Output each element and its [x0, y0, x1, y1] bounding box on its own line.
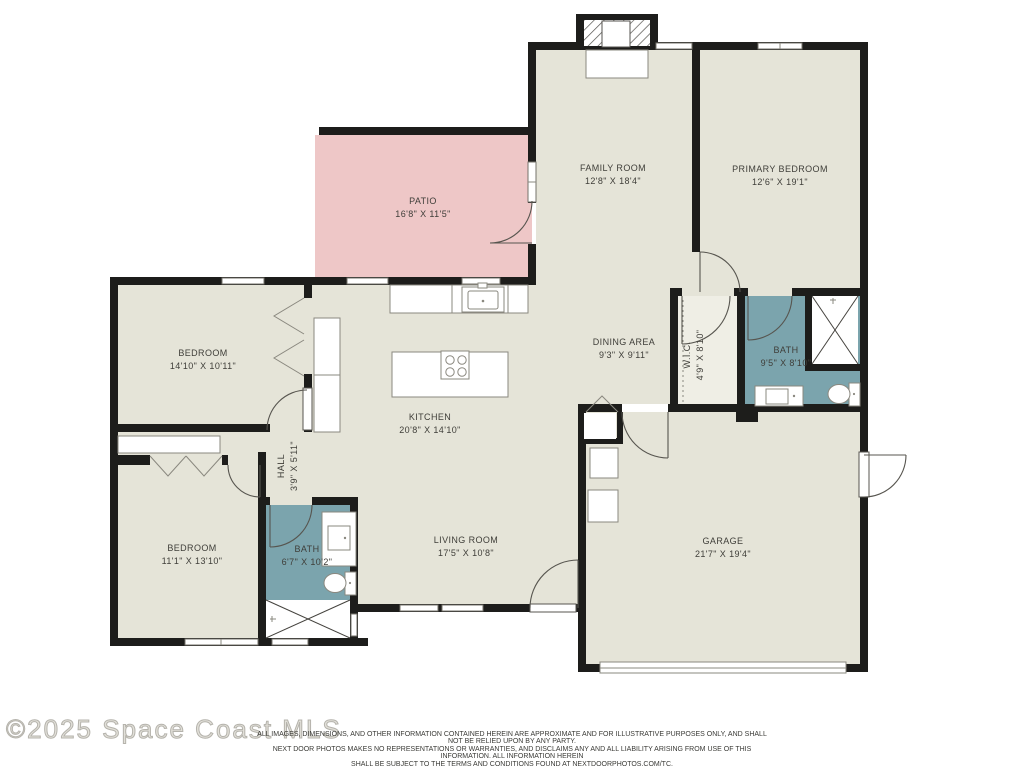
room-dims-hall: 3'9" X 5'11" [289, 441, 299, 491]
room-dims-patio: 16'8" X 11'5" [395, 209, 450, 219]
room-label-primary-bedroom: PRIMARY BEDROOM [732, 164, 828, 174]
floor-plan-drawing: PATIO 16'8" X 11'5" FAMILY ROOM 12'8" X … [0, 0, 1024, 768]
hearth [586, 50, 648, 78]
garage-exterior-door-swing-icon [859, 452, 906, 497]
window-icon [222, 278, 264, 284]
appliance-icon [588, 490, 618, 522]
window-icon [442, 605, 483, 611]
room-dims-primary-bedroom: 12'6" X 19'1" [752, 177, 808, 187]
disclaimer-line-3: SHALL BE SUBJECT TO THE TERMS AND CONDIT… [250, 761, 774, 768]
window-icon [347, 278, 388, 284]
room-label-wic: W.I.C. [682, 342, 692, 369]
closet-recess [118, 436, 220, 453]
room-label-garage: GARAGE [703, 536, 744, 546]
room-label-bedroom-2: BEDROOM [167, 543, 216, 553]
fireplace-icon [576, 14, 658, 78]
room-dims-wic: 4'9" X 8'10" [695, 330, 705, 381]
room-label-kitchen: KITCHEN [409, 412, 451, 422]
entry-closet [584, 413, 616, 439]
window-icon [272, 639, 308, 645]
room-dims-bath-2: 6'7" X 10'2" [282, 557, 333, 567]
room-dims-primary-bath: 9'5" X 8'10" [761, 358, 812, 368]
appliance-icon [590, 448, 618, 478]
room-label-bedroom-1: BEDROOM [178, 348, 227, 358]
room-label-patio: PATIO [409, 196, 437, 206]
window-icon [351, 614, 357, 636]
room-label-bath-2: BATH [295, 544, 320, 554]
room-dims-bedroom-2: 11'1" X 13'10" [162, 556, 223, 566]
room-label-family-room: FAMILY ROOM [580, 163, 646, 173]
disclaimer: ALL IMAGES, DIMENSIONS, AND OTHER INFORM… [250, 731, 774, 768]
patio-floor [315, 135, 532, 277]
room-label-living-room: LIVING ROOM [434, 535, 498, 545]
floor-plan-page: PATIO 16'8" X 11'5" FAMILY ROOM 12'8" X … [0, 0, 1024, 768]
disclaimer-line-1: ALL IMAGES, DIMENSIONS, AND OTHER INFORM… [250, 731, 774, 746]
room-dims-family-room: 12'8" X 18'4" [585, 176, 641, 186]
window-icon [400, 605, 438, 611]
window-icon [656, 43, 692, 49]
disclaimer-line-2: NEXT DOOR PHOTOS MAKES NO REPRESENTATION… [250, 746, 774, 761]
room-label-hall: HALL [276, 454, 286, 478]
kitchen-counter [390, 285, 528, 313]
garage-door-icon [600, 662, 846, 673]
shower-icon [812, 296, 858, 364]
room-label-dining-area: DINING AREA [593, 337, 655, 347]
bathroom-vanity-icon [755, 386, 803, 406]
room-dims-garage: 21'7" X 19'4" [695, 549, 751, 559]
room-dims-living-room: 17'5" X 10'8" [438, 548, 494, 558]
kitchen-sink-icon [462, 283, 504, 312]
patio-wall [319, 127, 532, 135]
room-dims-bedroom-1: 14'10" X 10'11" [170, 361, 236, 371]
cooktop-icon [441, 351, 469, 379]
room-dims-kitchen: 20'8" X 14'10" [399, 425, 460, 435]
room-dims-dining-area: 9'3" X 9'11" [599, 350, 649, 360]
shower-icon [266, 600, 350, 638]
room-label-primary-bath: BATH [774, 345, 799, 355]
